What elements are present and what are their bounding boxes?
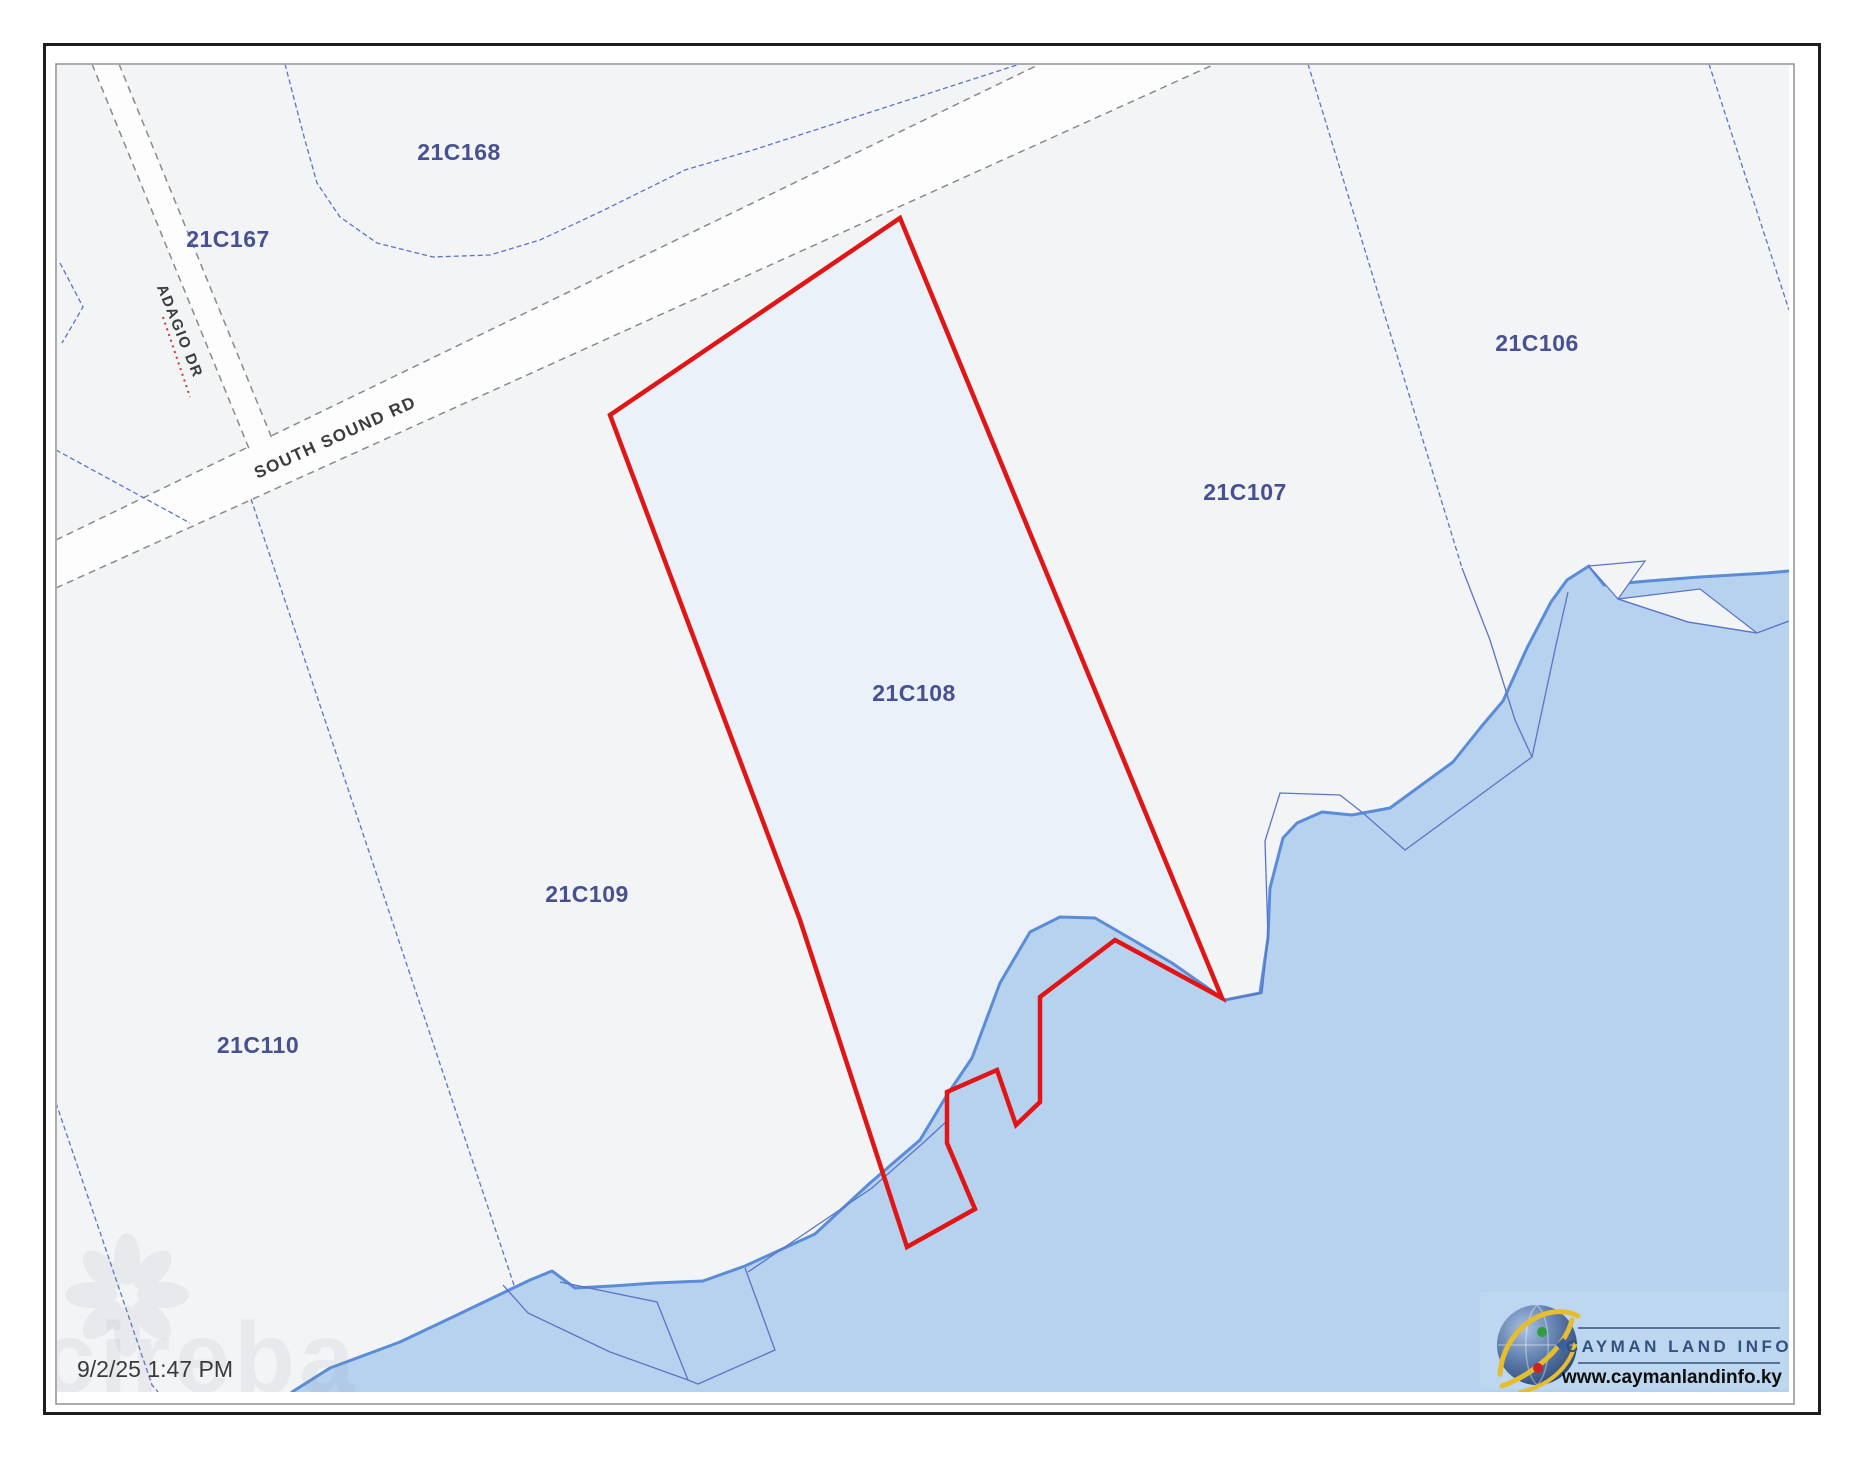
parcel-label-21c167: 21C167 bbox=[186, 226, 270, 252]
parcel-label-21c106: 21C106 bbox=[1495, 330, 1579, 356]
cadastral-map: cireba 21C168 21C167 21C106 21C107 21C10… bbox=[0, 0, 1860, 1458]
logo-url: www.caymanlandinfo.ky bbox=[1561, 1367, 1782, 1388]
cayman-land-info-logo: CAYMAN LAND INFO www.caymanlandinfo.ky bbox=[1480, 1292, 1792, 1392]
parcel-label-21c108: 21C108 bbox=[872, 680, 956, 706]
parcel-label-21c168: 21C168 bbox=[417, 139, 501, 165]
logo-title: CAYMAN LAND INFO bbox=[1566, 1337, 1792, 1356]
parcel-label-21c109: 21C109 bbox=[545, 881, 629, 907]
map-content: cireba 21C168 21C167 21C106 21C107 21C10… bbox=[40, 64, 1792, 1414]
timestamp: 9/2/25 1:47 PM bbox=[77, 1356, 233, 1382]
parcel-label-21c110: 21C110 bbox=[217, 1032, 299, 1058]
parcel-label-21c107: 21C107 bbox=[1203, 479, 1287, 505]
